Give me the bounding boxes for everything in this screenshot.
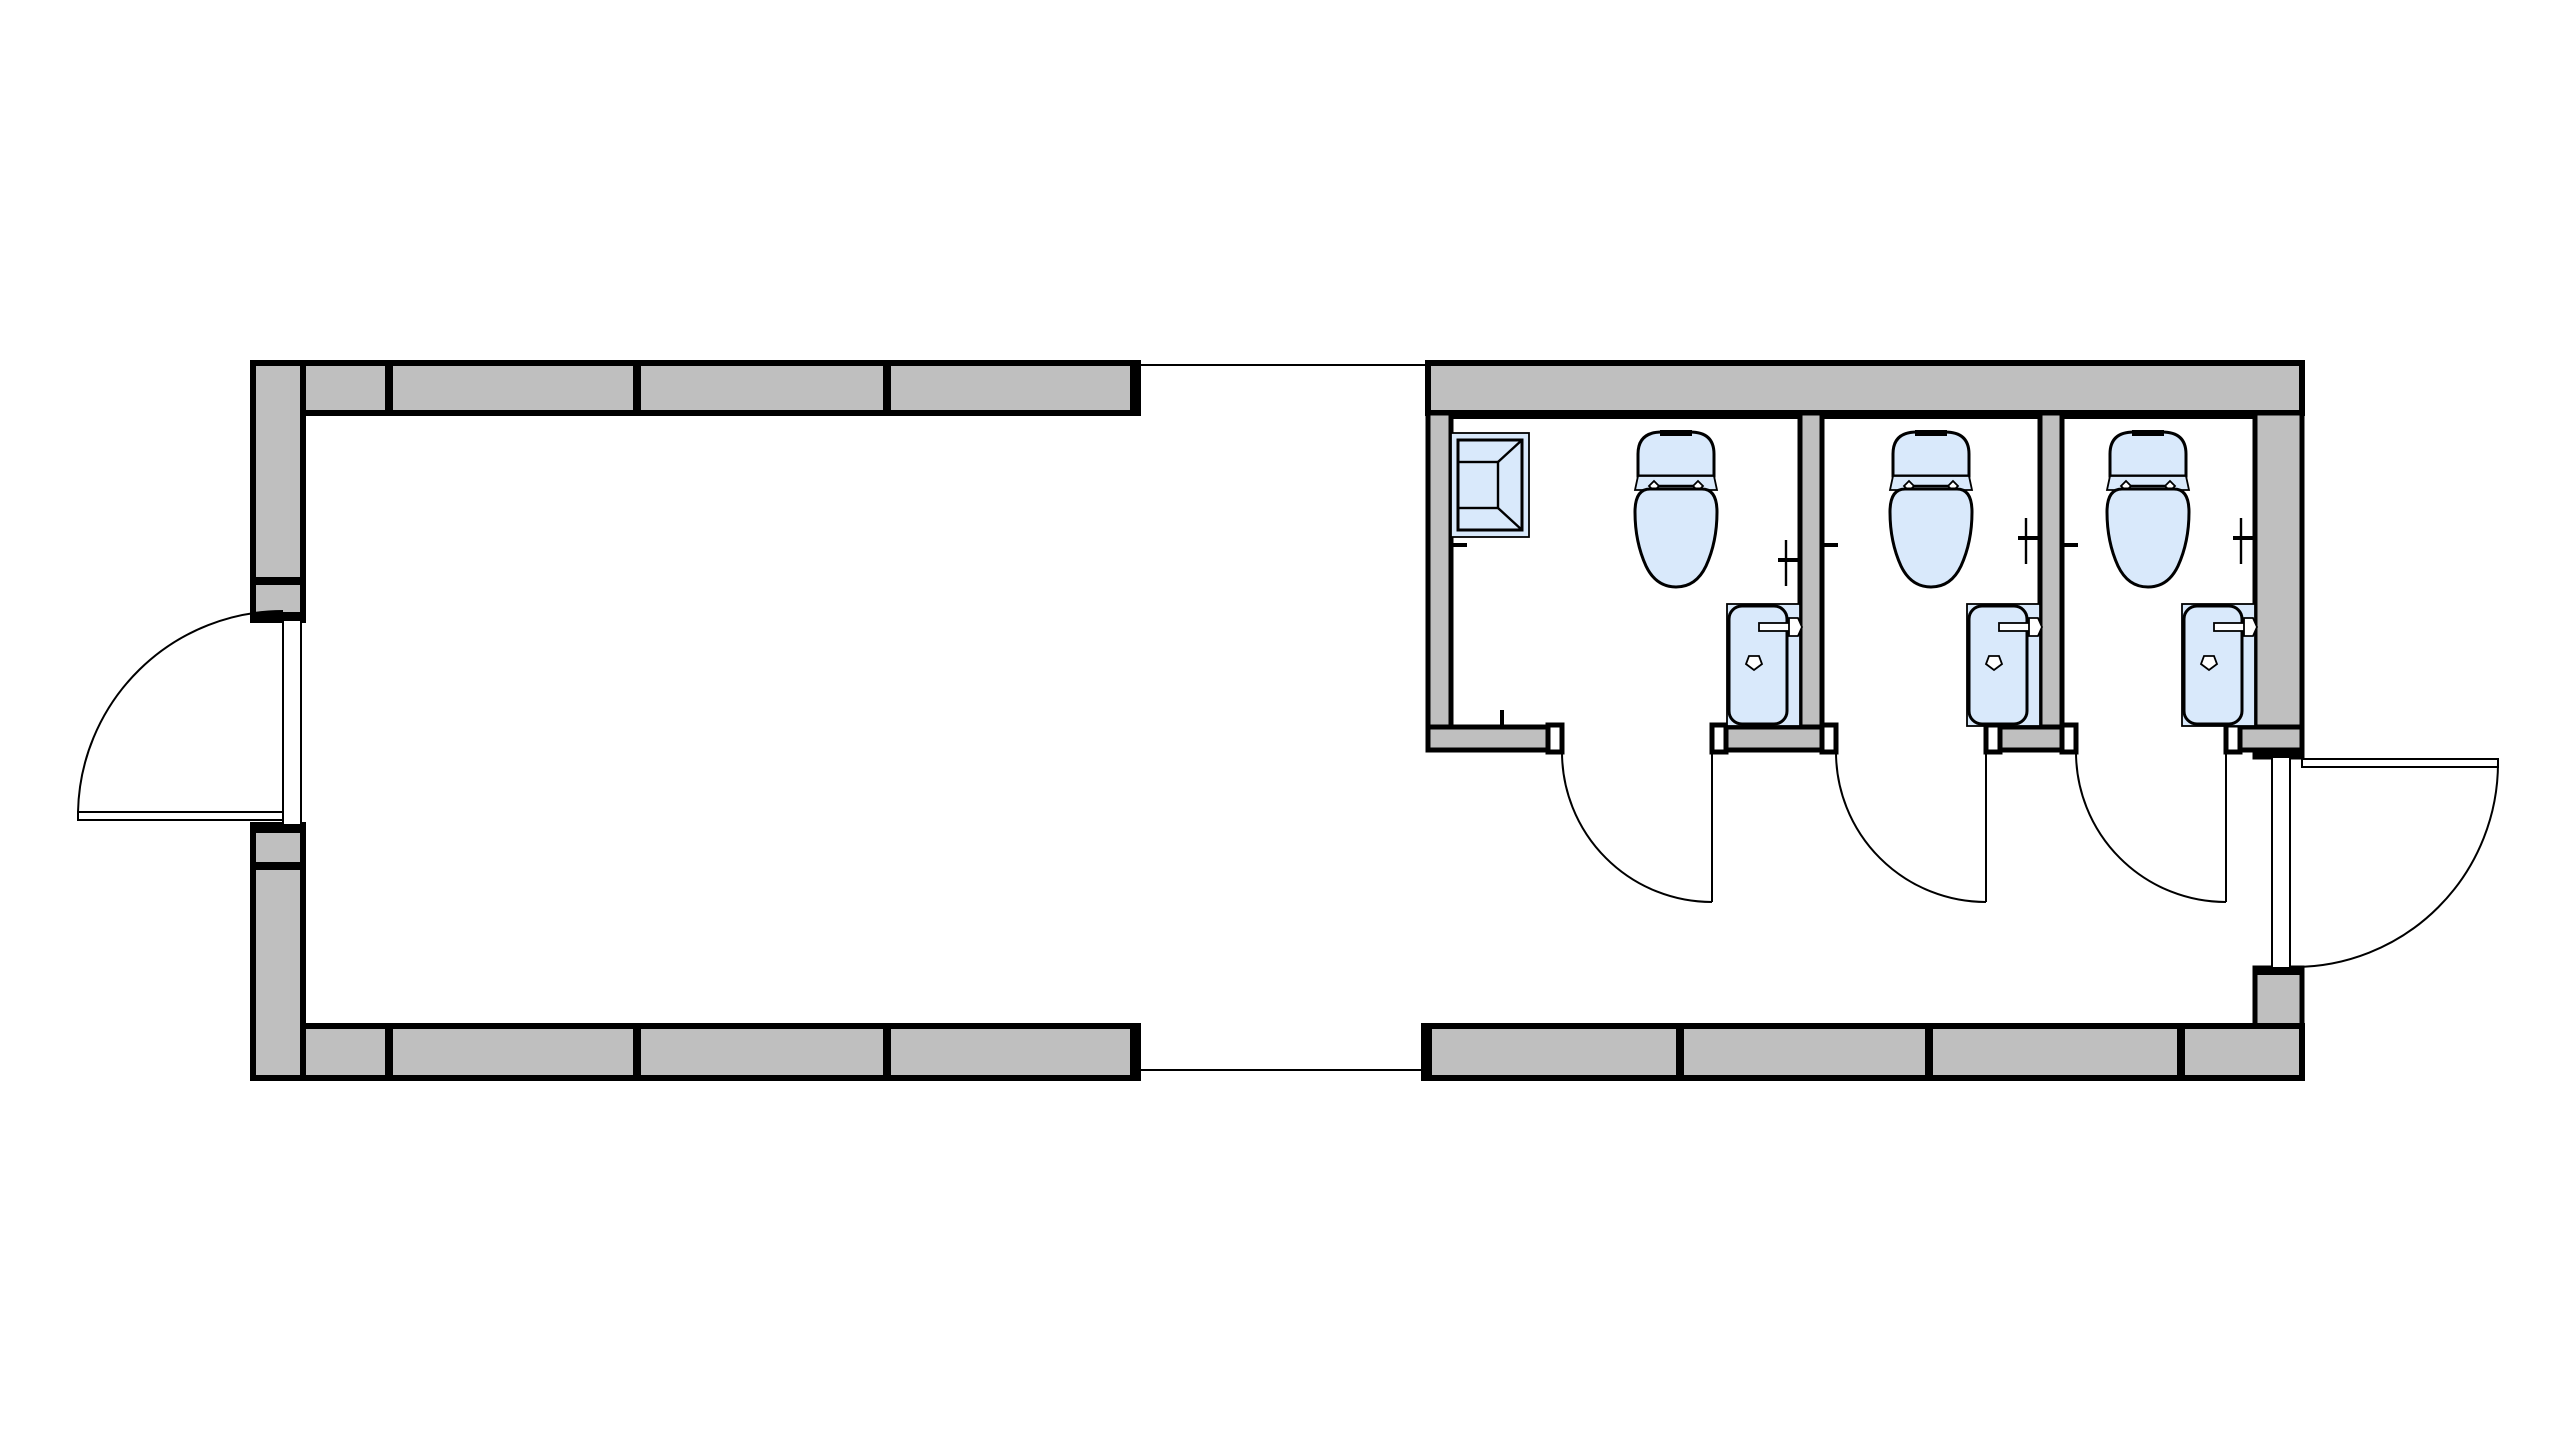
- stall-partition-1: [1800, 413, 1822, 750]
- door-leaf-open: [2302, 759, 2498, 767]
- toilet-paper-holder-icon: [1778, 540, 1800, 586]
- toilet-paper-holder-icon: [2018, 518, 2040, 564]
- door-jamb: [2062, 725, 2076, 752]
- mop-sink-rim: [1451, 433, 1529, 537]
- wall-south-right: [1424, 1026, 2302, 1078]
- door-jamb: [1822, 725, 1836, 752]
- door-opening-cap: [253, 825, 303, 833]
- restroom-west-wall: [1428, 413, 1451, 750]
- wall-end-cap: [1424, 1026, 1432, 1078]
- toilet-1: [1635, 432, 1717, 587]
- door-leaf-closed: [2272, 757, 2290, 968]
- wall-south-left: [303, 1026, 1138, 1078]
- door-swing-arc: [1836, 752, 1986, 902]
- wall-east-upper: [2255, 413, 2302, 757]
- door-opening-cap: [2255, 968, 2302, 975]
- stall3-door: [2076, 752, 2226, 902]
- door-leaf-open: [78, 812, 283, 820]
- stall2-door: [1836, 752, 1986, 902]
- door-swing-arc: [2294, 763, 2498, 967]
- door-swing-arc: [78, 611, 283, 812]
- lavatory-2: [1967, 604, 2042, 726]
- breezeway: [1136, 365, 1428, 1070]
- east-entry-door: [2272, 757, 2498, 968]
- stall-front-stub: [2240, 727, 2302, 750]
- wall-north-right: [1428, 363, 2302, 413]
- stall-front-stub: [2000, 727, 2062, 750]
- stall-front-stub: [1726, 727, 1822, 750]
- door-jamb: [1712, 725, 1726, 752]
- floor-plan-drawing: [0, 0, 2560, 1433]
- floor-plan-canvas: [0, 0, 2560, 1433]
- wall-north-left: [303, 363, 1138, 413]
- toilet-2: [1890, 432, 1972, 587]
- lavatory-1: [1727, 604, 1802, 726]
- door-jamb: [1548, 725, 1562, 752]
- wall-end-cap: [1130, 363, 1138, 413]
- stall-partition-2: [2040, 413, 2062, 750]
- restroom-block: [1424, 363, 2498, 1078]
- lavatory-3: [2182, 604, 2257, 726]
- door-leaf-closed: [283, 620, 301, 825]
- toilet-paper-holder-icon: [2233, 518, 2255, 564]
- door-jamb: [1986, 725, 2000, 752]
- door-jamb: [2226, 725, 2240, 752]
- mop-sink: [1451, 433, 1529, 537]
- west-entry-door: [78, 611, 301, 825]
- stall1-door: [1562, 752, 1712, 902]
- door-swing-arc: [1562, 752, 1712, 902]
- door-swing-arc: [2076, 752, 2226, 902]
- stall-front-stub: [1428, 727, 1548, 750]
- toilet-3: [2107, 432, 2189, 587]
- open-room: [78, 363, 1138, 1078]
